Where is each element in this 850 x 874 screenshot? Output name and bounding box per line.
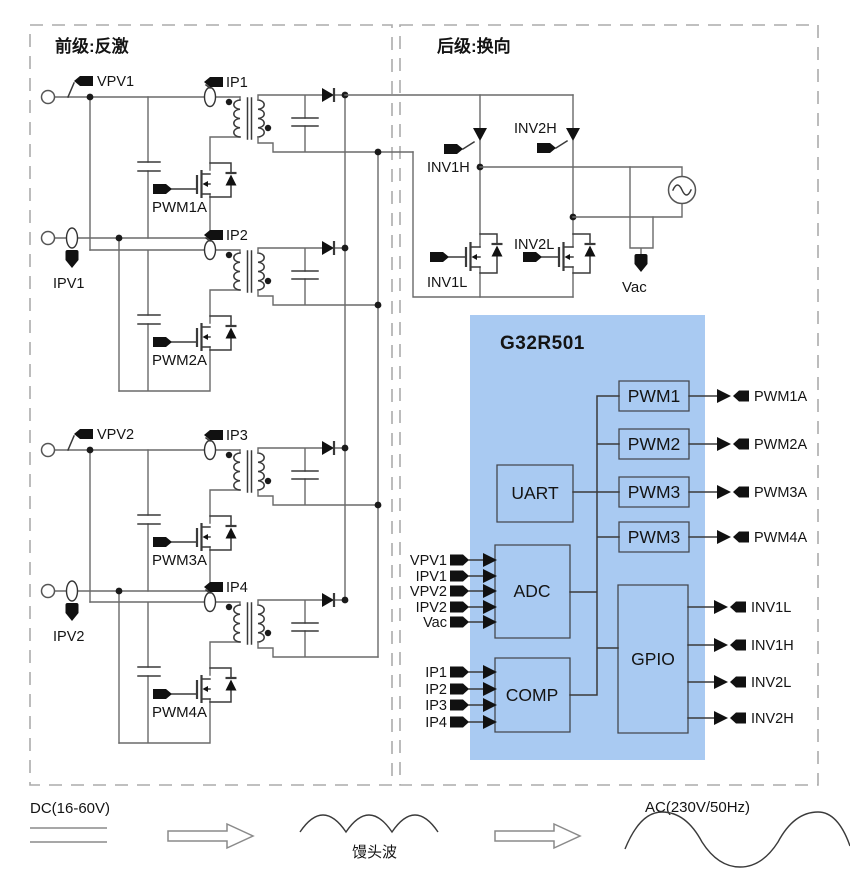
- current-flag-icon: [66, 250, 79, 268]
- gate-flag-icon: [444, 144, 463, 154]
- flyback-cell-2: PWM2A IP2: [90, 228, 378, 391]
- bridge-leg-2: INV2H INV2L: [514, 95, 596, 297]
- body-diode-icon: [492, 246, 503, 257]
- current-probe-icon: [67, 581, 78, 601]
- junction-dot: [87, 447, 94, 454]
- pwm1-label: PWM1: [628, 386, 681, 406]
- flyback-cell-1: PWM1A IP1: [138, 75, 413, 238]
- sine-wave-icon: [625, 812, 850, 867]
- polarity-dot: [265, 478, 271, 484]
- junction-dot: [375, 502, 382, 509]
- mosfet: [449, 234, 503, 273]
- inv2h-label: INV2H: [514, 121, 557, 137]
- ip2-probe-icon: [205, 241, 216, 260]
- secondary-wires: [258, 600, 378, 657]
- junction-dot: [116, 235, 123, 242]
- hump-wave-label: 馒头波: [352, 844, 397, 861]
- rectified-wave-icon: [300, 815, 438, 832]
- wires: [90, 250, 240, 391]
- adc-in-label: Vac: [423, 615, 447, 631]
- voltage-flag-icon: [74, 429, 93, 439]
- polarity-dot: [265, 630, 271, 636]
- arrow-right-icon: [717, 437, 731, 451]
- flag-stub: [68, 83, 74, 97]
- junction-dot: [342, 245, 349, 252]
- mosfet-arrow: [203, 686, 209, 692]
- rear-stage: INV1H INV1L INV2H: [345, 95, 696, 297]
- adc-label: ADC: [514, 581, 551, 601]
- comp-in-label: IP1: [425, 665, 447, 681]
- flag-left-icon: [733, 532, 749, 543]
- transformer-core: [248, 98, 252, 139]
- ipv1-label: IPV1: [53, 276, 84, 292]
- gate-flag-icon: [523, 252, 542, 262]
- body-diode-wire: [210, 163, 231, 197]
- junction-dot: [342, 445, 349, 452]
- uart-label: UART: [511, 483, 559, 503]
- vac-flag-icon: [635, 254, 648, 272]
- wires: [148, 450, 240, 591]
- output-capacitor: [292, 623, 318, 631]
- secondary-wires: [258, 248, 378, 305]
- comp-in-label: IP2: [425, 682, 447, 698]
- junction-dot: [342, 597, 349, 604]
- body-diode-icon: [585, 246, 596, 257]
- flow-arrow-icon: [168, 824, 253, 848]
- transformer-primary: [234, 253, 240, 290]
- mosfet-arrow: [203, 334, 209, 340]
- gpio-label: GPIO: [631, 649, 675, 669]
- ip3-label: IP3: [226, 428, 248, 444]
- capacitor: [138, 515, 160, 524]
- front-stage-title: 前级:反激: [55, 36, 129, 56]
- current-probe-icon: [67, 228, 78, 248]
- junction-dot: [375, 149, 382, 156]
- adc-in-label: VPV1: [410, 553, 447, 569]
- gate-flag-icon: [430, 252, 449, 262]
- polarity-dot: [265, 278, 271, 284]
- body-diode-icon: [226, 328, 237, 339]
- dc-input-label: DC(16-60V): [30, 800, 110, 817]
- gpio-out-label: INV1L: [751, 600, 791, 616]
- bridge-leg-1: INV1H INV1L: [427, 95, 503, 297]
- ip1-label: IP1: [226, 75, 248, 91]
- flag-left-icon: [733, 439, 749, 450]
- flag-stub: [68, 436, 74, 450]
- adc-in-label: IPV1: [416, 569, 447, 585]
- ipv2-label: IPV2: [53, 629, 84, 645]
- inv1l-label: INV1L: [427, 275, 467, 291]
- adc-in-label: VPV2: [410, 584, 447, 600]
- wires: [90, 602, 240, 743]
- schematic-canvas: 前级:反激 后级:换向 VPV1 IPV1: [0, 0, 850, 869]
- polarity-dot: [265, 125, 271, 131]
- ac-output: Vac: [480, 167, 696, 296]
- transformer-primary: [234, 100, 240, 137]
- current-flag-icon: [66, 603, 79, 621]
- arrow-right-icon: [717, 389, 731, 403]
- scr-icon: [473, 128, 487, 141]
- pwm3a-label: PWM3A: [152, 552, 207, 569]
- flag-left-icon: [730, 602, 746, 613]
- bus-wires: [345, 95, 378, 657]
- ip4-probe-icon: [205, 593, 216, 612]
- gate-wire: [463, 142, 474, 149]
- ip1-probe-icon: [205, 88, 216, 107]
- body-diode-icon: [226, 175, 237, 186]
- body-diode-wire: [210, 316, 231, 350]
- ip4-label: IP4: [226, 580, 248, 596]
- mosfet-arrow: [203, 534, 209, 540]
- mosfet-arrow: [565, 254, 571, 260]
- vac-label: Vac: [622, 279, 647, 296]
- pwm3a-out-label: PWM3A: [754, 485, 808, 501]
- microinverter-diagram: 前级:反激 后级:换向 VPV1 IPV1: [0, 0, 850, 869]
- input-terminal: [42, 444, 55, 457]
- ip3-probe-icon: [205, 441, 216, 460]
- inv2l-label: INV2L: [514, 237, 554, 253]
- junction-dot: [116, 588, 123, 595]
- capacitor: [138, 162, 160, 171]
- capacitor: [138, 667, 160, 676]
- transformer-primary: [234, 453, 240, 490]
- pwm2a-out-label: PWM2A: [754, 437, 808, 453]
- polarity-dot: [226, 604, 232, 610]
- transformer-secondary: [258, 605, 264, 642]
- scr-icon: [566, 128, 580, 141]
- pwm2-label: PWM2: [628, 434, 681, 454]
- body-diode-icon: [226, 680, 237, 691]
- vpv2-label: VPV2: [97, 427, 134, 443]
- flyback-cell-4: PWM4A IP4: [90, 580, 378, 743]
- ip2-label: IP2: [226, 228, 248, 244]
- gate-flag-icon: [153, 537, 172, 547]
- front-stage-border: [30, 25, 392, 785]
- flow-arrow-icon: [495, 824, 580, 848]
- comp-in-label: IP4: [425, 715, 447, 731]
- body-diode-wire: [210, 668, 231, 702]
- output-capacitor: [292, 471, 318, 479]
- mcu-block: G32R501 UART ADC COMP GPIO PWM1 PWM2 PWM…: [410, 315, 808, 760]
- output-capacitor: [292, 118, 318, 126]
- pwm1a-label: PWM1A: [152, 199, 207, 216]
- polarity-dot: [226, 252, 232, 258]
- transformer-secondary: [258, 253, 264, 290]
- gate-flag-icon: [153, 337, 172, 347]
- comp-label: COMP: [506, 685, 559, 705]
- pwm4a-out-label: PWM4A: [754, 530, 808, 546]
- voltage-flag-icon: [74, 76, 93, 86]
- front-stage: VPV1 IPV1 PWM1A: [42, 74, 414, 743]
- secondary-wires: [258, 448, 378, 505]
- transformer-core: [248, 451, 252, 492]
- ac-output-label: AC(230V/50Hz): [645, 799, 750, 816]
- flyback-cell-3: PWM3A IP3: [138, 428, 378, 591]
- comp-in-label: IP3: [425, 698, 447, 714]
- rectifier-diode-icon: [322, 593, 334, 607]
- secondary-wires: [258, 95, 413, 152]
- arrow-right-icon: [714, 711, 728, 725]
- transformer-secondary: [258, 100, 264, 137]
- pwm4a-label: PWM4A: [152, 704, 207, 721]
- transformer-core: [248, 603, 252, 644]
- rectifier-diode-icon: [322, 241, 334, 255]
- mosfet: [172, 516, 237, 551]
- rear-stage-title: 后级:换向: [437, 36, 511, 56]
- pwm1a-out-label: PWM1A: [754, 389, 808, 405]
- output-capacitor: [292, 271, 318, 279]
- mosfet-arrow: [472, 254, 478, 260]
- pwm2a-label: PWM2A: [152, 352, 207, 369]
- gpio-out-label: INV2L: [751, 675, 791, 691]
- mosfet-arrow: [203, 181, 209, 187]
- body-diode-wire: [210, 516, 231, 550]
- rectifier-diode-icon: [322, 88, 334, 102]
- input-terminal: [42, 232, 55, 245]
- gate-flag-icon: [537, 143, 556, 153]
- transformer-core: [248, 251, 252, 292]
- polarity-dot: [226, 99, 232, 105]
- wires: [148, 97, 240, 238]
- dc-link-buses: [342, 92, 382, 657]
- transformer-secondary: [258, 453, 264, 490]
- pwm-outputs: PWM1A PWM2A PWM3A PWM4A: [689, 389, 808, 546]
- arrow-right-icon: [717, 485, 731, 499]
- gate-wire: [556, 141, 567, 148]
- body-diode-icon: [226, 528, 237, 539]
- gate-flag-icon: [153, 689, 172, 699]
- adc-in-label: IPV2: [416, 600, 447, 616]
- junction-dot: [375, 302, 382, 309]
- transformer-primary: [234, 605, 240, 642]
- ac-wires: [480, 167, 682, 217]
- inv1h-label: INV1H: [427, 160, 470, 176]
- arrow-right-icon: [714, 600, 728, 614]
- gpio-out-label: INV1H: [751, 638, 794, 654]
- input-terminal: [42, 91, 55, 104]
- junction-dot: [87, 94, 94, 101]
- vac-divider: [630, 167, 653, 254]
- vpv1-label: VPV1: [97, 74, 134, 90]
- mosfet: [172, 668, 237, 703]
- flag-left-icon: [730, 677, 746, 688]
- power-flow: DC(16-60V) 馒头波 AC(230V/50Hz): [30, 799, 850, 867]
- adc-inputs: VPV1 IPV1 VPV2 IPV2 Vac: [410, 553, 497, 631]
- arrow-right-icon: [717, 530, 731, 544]
- dc-lines-icon: [30, 828, 107, 842]
- mcu-name: G32R501: [500, 333, 585, 354]
- flag-left-icon: [733, 487, 749, 498]
- flag-left-icon: [730, 640, 746, 651]
- gate-flag-icon: [153, 184, 172, 194]
- arrow-right-icon: [714, 675, 728, 689]
- arrow-right-icon: [714, 638, 728, 652]
- rectifier-diode-icon: [322, 441, 334, 455]
- mosfet: [172, 163, 237, 198]
- flag-left-icon: [733, 391, 749, 402]
- input-terminal: [42, 585, 55, 598]
- polarity-dot: [226, 452, 232, 458]
- capacitor: [138, 315, 160, 324]
- flag-left-icon: [730, 713, 746, 724]
- mosfet: [172, 316, 237, 351]
- pwm3-label: PWM3: [628, 482, 681, 502]
- gpio-out-label: INV2H: [751, 711, 794, 727]
- pwm3b-label: PWM3: [628, 527, 681, 547]
